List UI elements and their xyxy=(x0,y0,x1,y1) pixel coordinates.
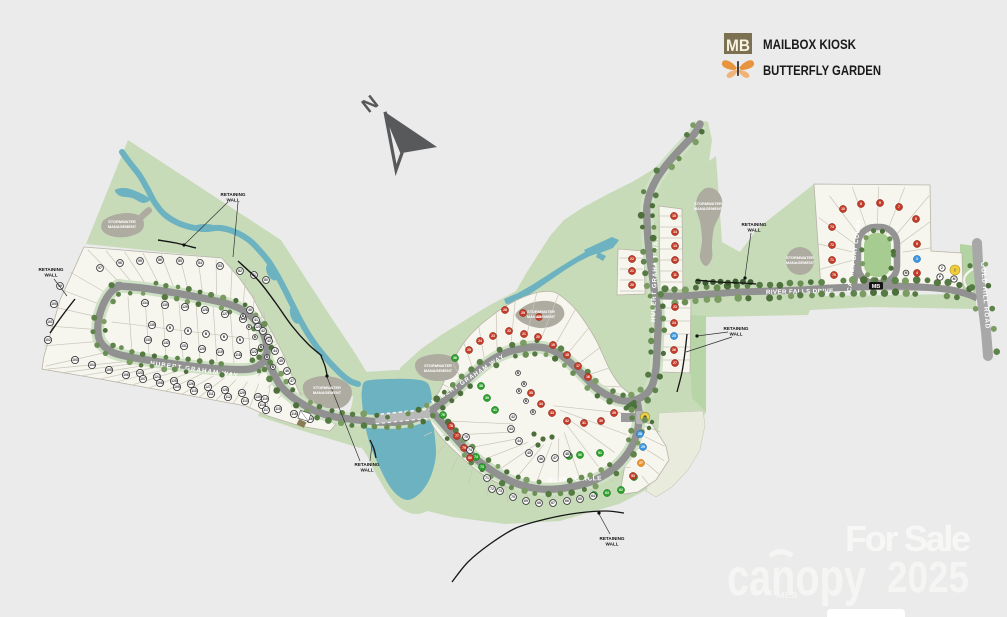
svg-text:116: 116 xyxy=(291,412,297,416)
svg-text:102: 102 xyxy=(45,338,51,342)
svg-text:12: 12 xyxy=(673,258,677,262)
svg-text:65: 65 xyxy=(578,497,582,501)
svg-text:72: 72 xyxy=(830,243,834,247)
svg-text:11: 11 xyxy=(673,273,677,277)
svg-text:53: 53 xyxy=(631,474,635,478)
svg-text:105: 105 xyxy=(106,368,112,372)
svg-text:108: 108 xyxy=(157,381,163,385)
svg-text:104: 104 xyxy=(89,363,95,367)
svg-text:107: 107 xyxy=(140,377,146,381)
svg-text:M: M xyxy=(905,271,908,275)
svg-text:128: 128 xyxy=(202,308,208,312)
svg-text:126: 126 xyxy=(188,382,194,386)
svg-text:117: 117 xyxy=(263,408,269,412)
svg-text:129: 129 xyxy=(182,305,188,309)
svg-text:80: 80 xyxy=(468,456,472,460)
svg-text:41: 41 xyxy=(254,318,258,322)
svg-text:30: 30 xyxy=(599,419,603,423)
svg-text:74: 74 xyxy=(468,448,472,452)
svg-text:64: 64 xyxy=(591,494,595,498)
svg-text:120: 120 xyxy=(199,347,205,351)
svg-text:75: 75 xyxy=(464,435,468,439)
svg-text:133: 133 xyxy=(145,338,151,342)
svg-text:25: 25 xyxy=(672,334,676,338)
svg-text:19: 19 xyxy=(551,343,555,347)
svg-text:42: 42 xyxy=(511,415,515,419)
svg-text:112: 112 xyxy=(225,395,231,399)
svg-text:25: 25 xyxy=(467,348,471,352)
svg-text:97: 97 xyxy=(98,266,102,270)
svg-text:2: 2 xyxy=(941,266,943,270)
svg-text:2025: 2025 xyxy=(887,553,969,602)
svg-text:21: 21 xyxy=(630,269,634,273)
svg-text:17: 17 xyxy=(576,364,580,368)
svg-text:44: 44 xyxy=(273,349,277,353)
svg-text:44: 44 xyxy=(517,439,521,443)
svg-text:4: 4 xyxy=(916,271,918,275)
svg-text:101: 101 xyxy=(47,320,53,324)
svg-text:118: 118 xyxy=(235,353,241,357)
svg-text:72: 72 xyxy=(490,487,494,491)
svg-text:82: 82 xyxy=(238,269,242,273)
svg-text:18: 18 xyxy=(565,353,569,357)
svg-text:85: 85 xyxy=(178,259,182,263)
svg-text:RETAINING: RETAINING xyxy=(724,326,749,331)
svg-text:15: 15 xyxy=(672,214,676,218)
svg-text:20: 20 xyxy=(536,335,540,339)
svg-text:41: 41 xyxy=(493,408,497,412)
svg-text:127: 127 xyxy=(205,385,211,389)
svg-text:84: 84 xyxy=(198,261,202,265)
svg-text:77: 77 xyxy=(455,434,459,438)
svg-text:WALL: WALL xyxy=(226,198,239,203)
svg-text:31: 31 xyxy=(582,421,586,425)
svg-text:MANAGEMENT: MANAGEMENT xyxy=(108,224,137,229)
svg-text:RETAINING: RETAINING xyxy=(600,536,625,541)
svg-text:9: 9 xyxy=(879,201,881,205)
svg-text:6: 6 xyxy=(915,217,917,221)
svg-text:26: 26 xyxy=(672,348,676,352)
svg-text:111: 111 xyxy=(208,392,213,396)
svg-text:22: 22 xyxy=(507,329,511,333)
svg-text:46: 46 xyxy=(539,457,543,461)
svg-text:MANAGEMENT: MANAGEMENT xyxy=(424,368,453,373)
svg-text:70: 70 xyxy=(832,273,836,277)
svg-text:76: 76 xyxy=(441,413,445,417)
svg-text:28: 28 xyxy=(638,432,642,436)
svg-text:23: 23 xyxy=(673,305,677,309)
svg-text:50: 50 xyxy=(578,453,582,457)
svg-text:48: 48 xyxy=(565,452,569,456)
svg-text:14: 14 xyxy=(673,230,677,234)
svg-text:MB: MB xyxy=(726,36,750,55)
svg-text:47: 47 xyxy=(290,379,294,383)
svg-text:46: 46 xyxy=(285,369,289,373)
svg-text:29: 29 xyxy=(521,311,525,315)
svg-text:MANAGEMENT: MANAGEMENT xyxy=(786,260,815,265)
svg-text:WALL: WALL xyxy=(605,542,618,547)
svg-text:WALL: WALL xyxy=(729,332,742,337)
svg-text:27: 27 xyxy=(639,461,643,465)
svg-text:34: 34 xyxy=(539,402,543,406)
svg-text:123: 123 xyxy=(137,371,143,375)
svg-text:13: 13 xyxy=(673,244,677,248)
svg-text:MAILBOX KIOSK: MAILBOX KIOSK xyxy=(763,36,856,52)
svg-text:125: 125 xyxy=(171,379,177,383)
svg-text:63: 63 xyxy=(605,491,609,495)
svg-text:135: 135 xyxy=(149,323,155,327)
svg-text:8: 8 xyxy=(860,202,862,206)
svg-text:73: 73 xyxy=(830,225,834,229)
svg-text:71: 71 xyxy=(485,476,489,480)
svg-text:86: 86 xyxy=(158,258,162,262)
svg-text:7: 7 xyxy=(898,205,900,209)
svg-text:69: 69 xyxy=(524,499,528,503)
svg-text:73: 73 xyxy=(498,489,502,493)
svg-text:106: 106 xyxy=(123,373,129,377)
svg-text:20: 20 xyxy=(630,283,634,287)
svg-text:68: 68 xyxy=(537,501,541,505)
svg-text:33: 33 xyxy=(550,411,554,415)
svg-text:83: 83 xyxy=(218,264,222,268)
svg-text:RETAINING: RETAINING xyxy=(221,192,246,197)
svg-text:5: 5 xyxy=(916,242,918,246)
svg-text:RETAINING: RETAINING xyxy=(355,462,380,467)
svg-text:51: 51 xyxy=(598,451,602,455)
svg-text:80: 80 xyxy=(264,278,268,282)
svg-text:24: 24 xyxy=(672,321,676,325)
svg-text:10: 10 xyxy=(841,207,845,211)
svg-text:WALL: WALL xyxy=(747,228,760,233)
svg-text:132: 132 xyxy=(163,341,169,345)
svg-text:131: 131 xyxy=(181,344,187,348)
svg-text:21: 21 xyxy=(522,332,526,336)
svg-text:32: 32 xyxy=(565,419,569,423)
svg-text:103: 103 xyxy=(72,358,78,362)
svg-text:22: 22 xyxy=(630,257,634,261)
svg-text:WALL: WALL xyxy=(44,273,57,278)
svg-text:96: 96 xyxy=(118,261,122,265)
svg-text:110: 110 xyxy=(191,389,197,393)
svg-text:35: 35 xyxy=(529,391,533,395)
svg-text:RETAINING: RETAINING xyxy=(742,222,767,227)
svg-text:16: 16 xyxy=(586,375,590,379)
svg-text:67: 67 xyxy=(551,501,555,505)
svg-text:134: 134 xyxy=(142,301,148,305)
svg-text:79: 79 xyxy=(462,446,466,450)
svg-text:MANAGEMENT: MANAGEMENT xyxy=(694,206,723,211)
svg-text:29: 29 xyxy=(641,445,645,449)
svg-text:71: 71 xyxy=(830,258,834,262)
svg-text:122: 122 xyxy=(251,350,257,354)
svg-text:38: 38 xyxy=(479,384,483,388)
svg-text:109: 109 xyxy=(174,385,180,389)
svg-text:24: 24 xyxy=(478,339,482,343)
svg-text:42: 42 xyxy=(261,329,265,333)
svg-text:125: 125 xyxy=(255,325,261,329)
svg-text:i: i xyxy=(954,268,955,273)
svg-text:129: 129 xyxy=(239,391,245,395)
svg-text:43: 43 xyxy=(267,339,271,343)
svg-text:74: 74 xyxy=(474,455,478,459)
svg-text:MB: MB xyxy=(872,284,881,290)
svg-text:29: 29 xyxy=(612,411,616,415)
svg-text:40: 40 xyxy=(248,308,252,312)
svg-text:62: 62 xyxy=(619,488,623,492)
svg-text:119: 119 xyxy=(262,397,268,401)
svg-text:M: M xyxy=(953,277,956,281)
svg-text:119: 119 xyxy=(217,350,223,354)
svg-text:73: 73 xyxy=(480,465,484,469)
svg-text:27: 27 xyxy=(673,361,677,365)
svg-text:23: 23 xyxy=(491,334,495,338)
svg-text:BUTTERFLY GARDEN: BUTTERFLY GARDEN xyxy=(763,62,881,78)
svg-text:RETAINING: RETAINING xyxy=(39,267,64,272)
svg-text:66: 66 xyxy=(565,499,569,503)
svg-text:47: 47 xyxy=(553,456,557,460)
svg-text:70: 70 xyxy=(511,495,515,499)
svg-text:130: 130 xyxy=(255,395,261,399)
svg-text:28: 28 xyxy=(503,308,507,312)
svg-text:3: 3 xyxy=(916,257,918,261)
svg-text:100: 100 xyxy=(51,302,57,306)
svg-text:115: 115 xyxy=(275,407,281,411)
svg-text:128: 128 xyxy=(222,388,228,392)
svg-text:MANAGEMENT: MANAGEMENT xyxy=(527,314,556,319)
svg-text:39: 39 xyxy=(485,396,489,400)
svg-text:127: 127 xyxy=(222,312,228,316)
svg-text:130: 130 xyxy=(162,303,168,307)
svg-text:124: 124 xyxy=(154,375,160,379)
svg-text:MLS: MLS xyxy=(776,590,798,600)
svg-text:45: 45 xyxy=(527,451,531,455)
svg-text:78: 78 xyxy=(449,424,453,428)
svg-text:36: 36 xyxy=(453,356,457,360)
svg-text:45: 45 xyxy=(279,359,283,363)
svg-text:MANAGEMENT: MANAGEMENT xyxy=(313,390,342,395)
svg-text:43: 43 xyxy=(509,427,513,431)
svg-text:WALL: WALL xyxy=(360,468,373,473)
svg-text:95: 95 xyxy=(138,259,142,263)
svg-text:113: 113 xyxy=(242,399,248,403)
